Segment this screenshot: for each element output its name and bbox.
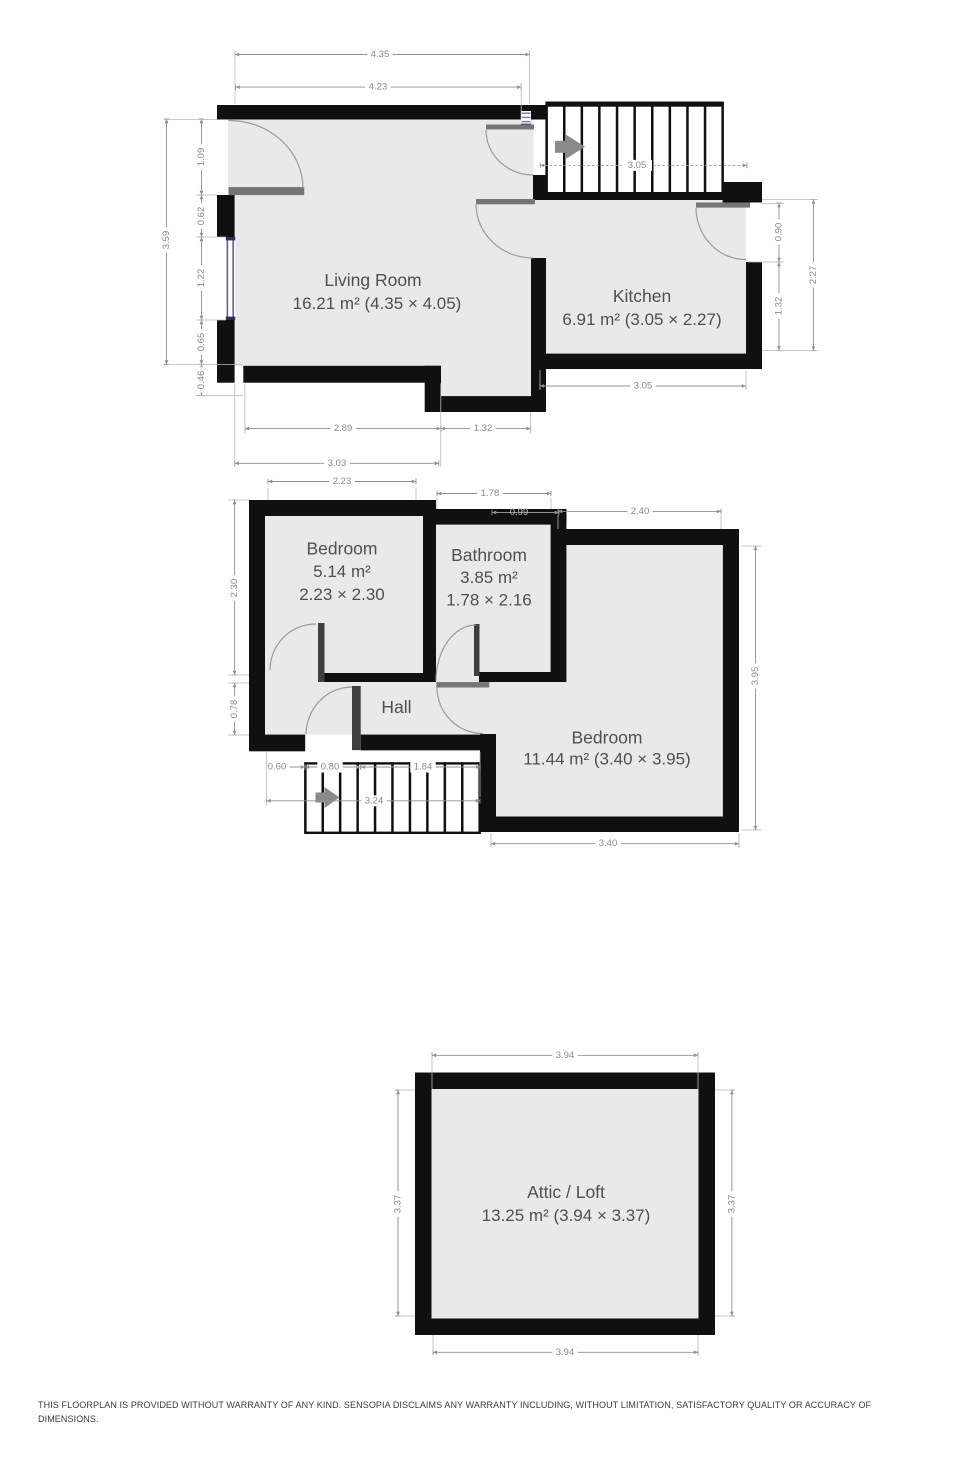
svg-text:3.03: 3.03 bbox=[328, 458, 347, 469]
svg-text:16.21 m² (4.35 × 4.05): 16.21 m² (4.35 × 4.05) bbox=[293, 294, 462, 313]
svg-text:3.94: 3.94 bbox=[556, 1347, 575, 1358]
svg-text:Kitchen: Kitchen bbox=[613, 286, 671, 306]
svg-text:11.44 m² (3.40 × 3.95): 11.44 m² (3.40 × 3.95) bbox=[523, 750, 690, 769]
svg-text:0.99: 0.99 bbox=[510, 507, 529, 518]
svg-text:Bedroom: Bedroom bbox=[571, 728, 642, 748]
svg-text:0.65: 0.65 bbox=[196, 333, 207, 352]
svg-text:1.32: 1.32 bbox=[474, 423, 493, 434]
svg-text:DIMENSIONS.: DIMENSIONS. bbox=[38, 1414, 99, 1424]
svg-text:3.05: 3.05 bbox=[634, 381, 653, 392]
svg-text:0.46: 0.46 bbox=[196, 371, 207, 390]
svg-text:0.90: 0.90 bbox=[774, 223, 785, 242]
svg-text:0.62: 0.62 bbox=[196, 207, 207, 226]
svg-text:1.09: 1.09 bbox=[196, 148, 207, 167]
svg-text:2.27: 2.27 bbox=[808, 266, 819, 285]
svg-text:2.89: 2.89 bbox=[334, 423, 353, 434]
svg-text:3.05: 3.05 bbox=[628, 160, 647, 171]
svg-text:4.23: 4.23 bbox=[369, 82, 388, 93]
svg-text:Hall: Hall bbox=[381, 697, 411, 717]
svg-text:3.59: 3.59 bbox=[161, 231, 172, 250]
svg-text:Attic / Loft: Attic / Loft bbox=[527, 1182, 605, 1202]
svg-text:1.78: 1.78 bbox=[481, 488, 500, 499]
svg-text:2.40: 2.40 bbox=[631, 506, 650, 517]
svg-text:1.84: 1.84 bbox=[414, 762, 433, 773]
svg-text:3.24: 3.24 bbox=[365, 795, 384, 806]
svg-text:3.94: 3.94 bbox=[556, 1050, 575, 1061]
svg-text:Bathroom: Bathroom bbox=[451, 545, 527, 565]
svg-text:Bedroom: Bedroom bbox=[306, 539, 377, 559]
svg-text:0.80: 0.80 bbox=[321, 762, 340, 773]
svg-text:Living Room: Living Room bbox=[324, 270, 421, 290]
svg-text:0.60: 0.60 bbox=[268, 762, 287, 773]
svg-text:5.14 m²: 5.14 m² bbox=[313, 562, 371, 581]
svg-text:2.23: 2.23 bbox=[333, 476, 352, 487]
svg-text:1.32: 1.32 bbox=[774, 297, 785, 316]
svg-text:3.95: 3.95 bbox=[750, 667, 761, 686]
svg-text:3.37: 3.37 bbox=[726, 1195, 737, 1214]
svg-text:3.85 m²: 3.85 m² bbox=[460, 568, 518, 587]
svg-text:2.23 × 2.30: 2.23 × 2.30 bbox=[299, 585, 385, 604]
svg-text:2.30: 2.30 bbox=[229, 579, 240, 598]
svg-text:0.78: 0.78 bbox=[229, 700, 240, 719]
svg-text:THIS FLOORPLAN IS PROVIDED WIT: THIS FLOORPLAN IS PROVIDED WITHOUT WARRA… bbox=[38, 1400, 872, 1410]
svg-text:4.35: 4.35 bbox=[371, 49, 390, 60]
svg-text:3.40: 3.40 bbox=[599, 838, 618, 849]
svg-text:1.22: 1.22 bbox=[196, 269, 207, 288]
svg-text:13.25 m² (3.94 × 3.37): 13.25 m² (3.94 × 3.37) bbox=[482, 1206, 651, 1225]
svg-text:3.37: 3.37 bbox=[393, 1195, 404, 1214]
svg-text:6.91 m² (3.05 × 2.27): 6.91 m² (3.05 × 2.27) bbox=[562, 310, 721, 329]
svg-text:1.78 × 2.16: 1.78 × 2.16 bbox=[446, 591, 532, 610]
